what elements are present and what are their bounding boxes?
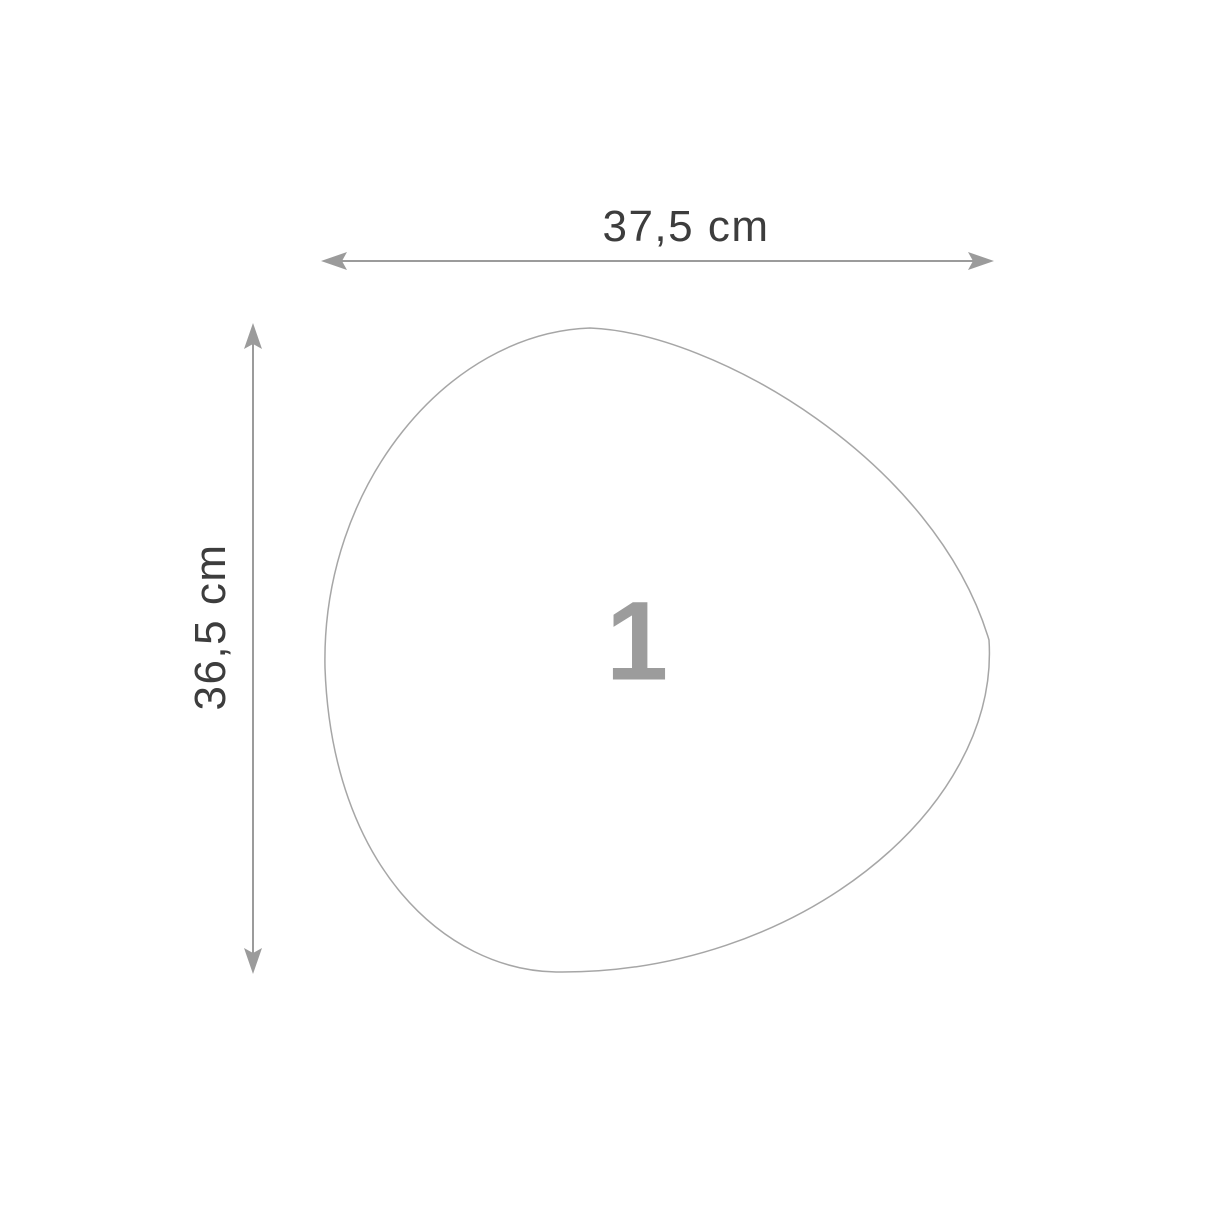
height-dimension-line [244, 323, 262, 974]
width-dimension-line [321, 252, 994, 270]
shape-number-label: 1 [606, 586, 668, 698]
height-dimension-label: 36,5 cm [189, 543, 233, 710]
dimension-diagram: 37,5 cm 36,5 cm 1 [0, 0, 1218, 1218]
width-dimension-label: 37,5 cm [602, 205, 769, 249]
